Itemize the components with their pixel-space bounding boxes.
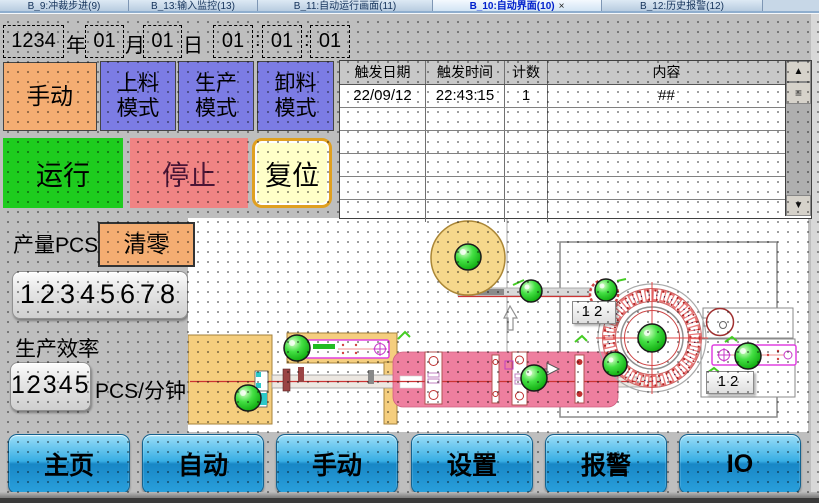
reset-button[interactable]: 复位 [252, 138, 332, 208]
tab-auto-screen-active[interactable]: B_10:自动界面(10)× [433, 0, 602, 11]
nav-io-button[interactable]: IO [679, 434, 801, 494]
nav-home-button[interactable]: 主页 [8, 434, 130, 494]
rate-label: 生产效率 [15, 333, 99, 363]
year-unit-label: 年 [66, 29, 86, 58]
day-unit-label: 日 [183, 29, 203, 58]
production-count-display: 12345678 [12, 271, 188, 319]
month-unit-label: 月 [125, 29, 145, 58]
col-header-time: 触发时间 [426, 61, 505, 84]
tab-input-monitor[interactable]: B_13:输入监控(13) [129, 0, 258, 11]
time-colon-2: : [304, 29, 310, 52]
nav-alarm-button[interactable]: 报警 [545, 434, 667, 494]
table-row[interactable] [340, 131, 785, 154]
table-row[interactable] [340, 200, 785, 222]
table-row[interactable] [340, 108, 785, 131]
month-field[interactable]: 01 [85, 25, 124, 58]
feed-mode-button[interactable]: 上料模式 [100, 61, 176, 131]
machine-diagram-graphic [188, 218, 808, 432]
nav-settings-button[interactable]: 设置 [411, 434, 533, 494]
scrollbar-thumb[interactable]: ≡ [786, 82, 811, 104]
table-row[interactable] [340, 177, 785, 200]
tab-punch-step[interactable]: B_9:冲裁步进(9) [0, 0, 129, 11]
machine-diagram-panel: 12 12 [188, 218, 808, 432]
hour-field[interactable]: 01 [213, 25, 253, 58]
col-header-count: 计数 [505, 61, 548, 84]
year-field[interactable]: 1234 [3, 25, 64, 58]
station-counter-right: 12 [706, 371, 754, 394]
hmi-editor-screen: B_9:冲裁步进(9) B_13:输入监控(13) B_11:自动运行画面(11… [0, 0, 819, 503]
table-scrollbar[interactable]: ▲ ≡ ▼ [785, 61, 811, 216]
tabbar-divider-light [0, 13, 819, 14]
day-field[interactable]: 01 [143, 25, 182, 58]
window-bottom-bar [0, 497, 819, 503]
alarm-table-header: 触发日期 触发时间 计数 内容 [340, 61, 785, 85]
col-header-content: 内容 [548, 61, 785, 84]
alarm-table: 触发日期 触发时间 计数 内容 22/09/12 22:43:15 1 ## ▲… [339, 60, 812, 219]
nav-auto-button[interactable]: 自动 [142, 434, 264, 494]
table-row[interactable]: 22/09/12 22:43:15 1 ## [340, 85, 785, 108]
tab-auto-run-screen[interactable]: B_11:自动运行画面(11) [258, 0, 433, 11]
second-field[interactable]: 01 [310, 25, 350, 58]
run-button[interactable]: 运行 [3, 138, 123, 208]
scroll-down-icon[interactable]: ▼ [786, 195, 811, 216]
nav-manual-button[interactable]: 手动 [276, 434, 398, 494]
stop-button[interactable]: 停止 [130, 138, 248, 208]
tab-history-alarm[interactable]: B_12:历史报警(12) [602, 0, 763, 11]
rate-unit-label: PCS/分钟 [95, 375, 186, 405]
unload-mode-button[interactable]: 卸料模式 [257, 61, 334, 131]
tab-close-icon[interactable]: × [559, 1, 565, 11]
rate-display: 12345 [10, 362, 91, 411]
window-right-edge [811, 14, 819, 492]
col-header-date: 触发日期 [340, 61, 426, 84]
production-mode-button[interactable]: 生产模式 [178, 61, 254, 131]
station-counter-left: 12 [572, 301, 616, 324]
minute-field[interactable]: 01 [262, 25, 302, 58]
manual-mode-button[interactable]: 手动 [3, 62, 97, 131]
tab-bar: B_9:冲裁步进(9) B_13:输入监控(13) B_11:自动运行画面(11… [0, 0, 819, 11]
production-count-label: 产量PCS [13, 229, 98, 259]
time-colon-1: : [255, 29, 261, 52]
table-row[interactable] [340, 154, 785, 177]
scroll-up-icon[interactable]: ▲ [786, 61, 811, 82]
clear-count-button[interactable]: 清零 [98, 222, 195, 267]
